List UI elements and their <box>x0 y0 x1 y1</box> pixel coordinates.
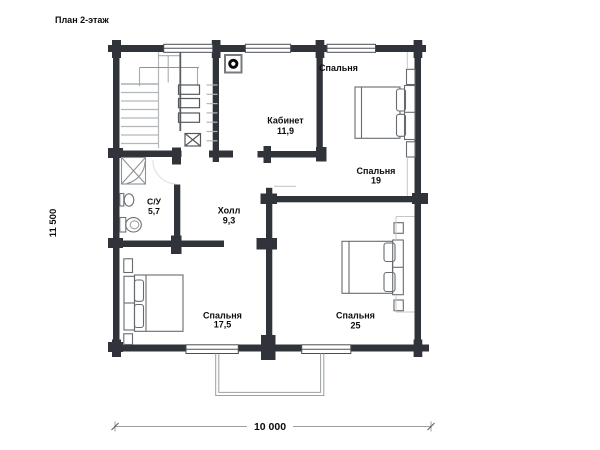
svg-text:План 2-этаж: План 2-этаж <box>55 15 109 25</box>
svg-text:19: 19 <box>371 176 381 186</box>
svg-text:Спальня: Спальня <box>319 63 358 73</box>
svg-text:Спальня: Спальня <box>357 166 396 176</box>
svg-text:11 500: 11 500 <box>48 209 59 238</box>
svg-text:17,5: 17,5 <box>214 320 232 330</box>
svg-text:10 000: 10 000 <box>254 421 286 433</box>
svg-text:Кабинет: Кабинет <box>267 116 304 126</box>
svg-text:Холл: Холл <box>218 206 241 216</box>
svg-text:Спальня: Спальня <box>336 311 375 321</box>
svg-text:25: 25 <box>350 321 360 331</box>
svg-text:11,9: 11,9 <box>277 126 294 136</box>
svg-text:9,3: 9,3 <box>223 216 236 226</box>
svg-text:С/У: С/У <box>147 197 162 207</box>
svg-text:5,7: 5,7 <box>148 206 160 216</box>
